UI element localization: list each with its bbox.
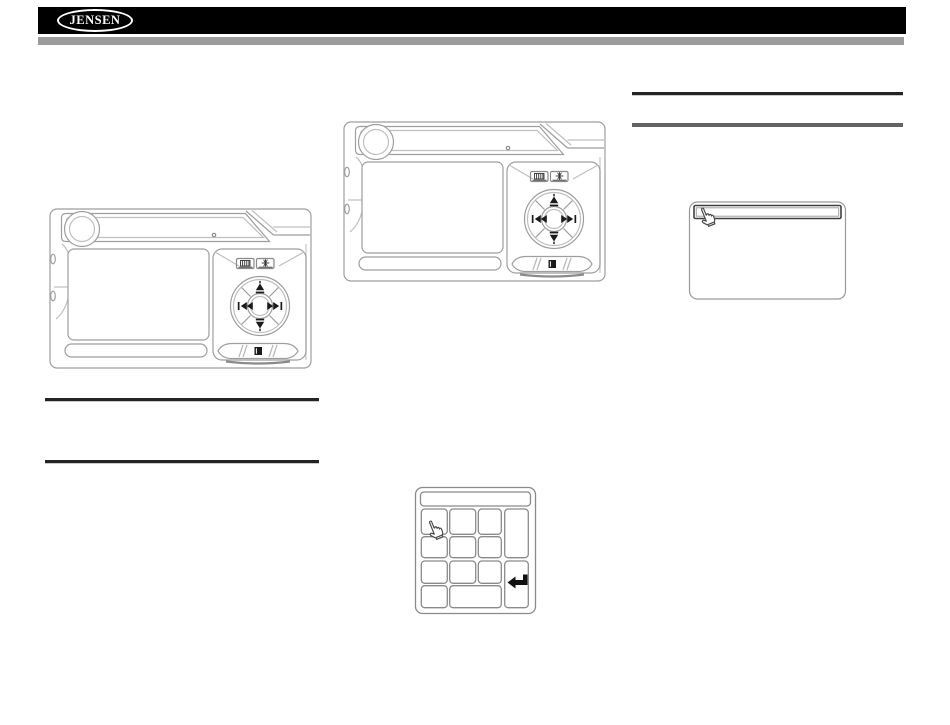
manual-page: JENSEN: [0, 0, 950, 725]
keypad-key: [421, 537, 447, 558]
section-rule-right-2: [632, 123, 903, 127]
jensen-logo: JENSEN: [57, 9, 133, 32]
keypad-key-tall: [505, 509, 529, 558]
keypad-key: [478, 561, 501, 583]
menu-screen-illustration: [688, 200, 848, 302]
header-accent-bar: [38, 37, 904, 45]
header-bar: JENSEN: [38, 7, 906, 34]
section-rule-left-1: [45, 398, 319, 401]
keypad-key: [478, 537, 501, 558]
keypad-key: [450, 509, 476, 534]
keypad-key-wide: [450, 586, 502, 608]
section-rule-left-2: [45, 460, 319, 463]
dvd-player-illustration-left: [49, 208, 313, 370]
dvd-player-illustration-center: [343, 121, 607, 283]
keypad-key: [450, 537, 476, 558]
keypad-key: [421, 586, 447, 608]
keypad-display: [421, 492, 531, 506]
numeric-keypad-illustration: [414, 486, 538, 616]
keypad-key: [450, 561, 476, 583]
keypad-key: [478, 509, 501, 534]
jensen-logo-text: JENSEN: [70, 14, 121, 27]
section-rule-right-1: [632, 92, 903, 95]
keypad-key: [421, 561, 447, 583]
